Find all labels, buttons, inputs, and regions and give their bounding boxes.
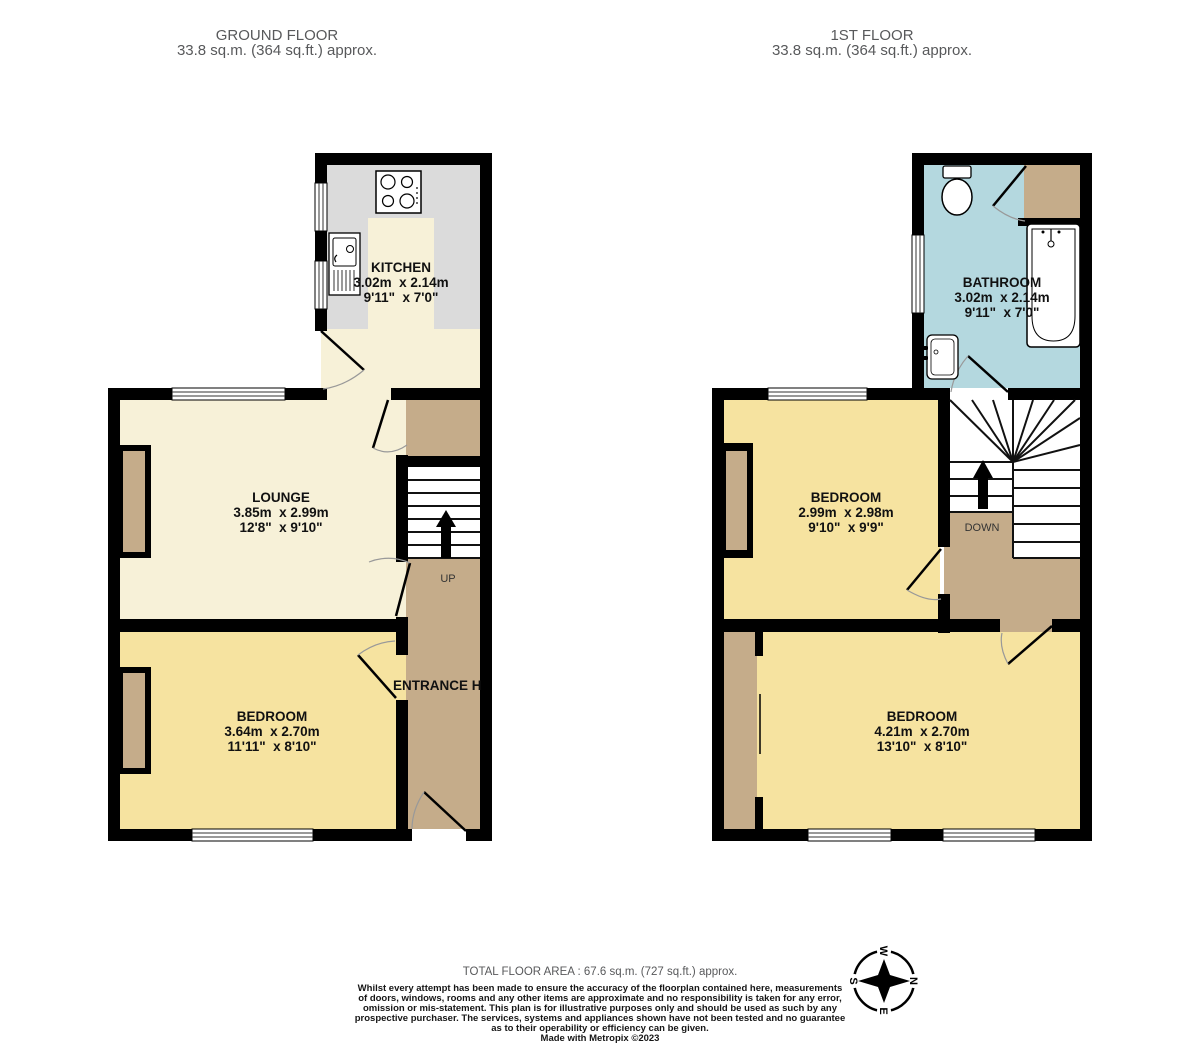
ff-bedroom1-dim-imperial: 9'10" x 9'9" (808, 520, 884, 535)
ground-floor-title-text: GROUND FLOOR (77, 28, 477, 43)
total-floor-area: TOTAL FLOOR AREA : 67.6 sq.m. (727 sq.ft… (0, 966, 1200, 978)
first-floor-title: 1ST FLOOR 33.8 sq.m. (364 sq.ft.) approx… (672, 28, 1072, 58)
gf-bedroom-dim-metric: 3.64m x 2.70m (224, 724, 319, 739)
lounge-dim-imperial: 12'8" x 9'10" (239, 520, 322, 535)
ff-bedroom2-dim-metric: 4.21m x 2.70m (874, 724, 969, 739)
bathroom-label: BATHROOM (963, 275, 1042, 290)
first-floor-plan: BATHROOM 3.02m x 2.14m 9'11" x 7'0" BEDR… (700, 145, 1100, 850)
kitchen-dim-metric: 3.02m x 2.14m (353, 275, 448, 290)
bathroom-dim-metric: 3.02m x 2.14m (954, 290, 1049, 305)
metropix-credit: Made with Metropix ©2023 (0, 1034, 1200, 1044)
ground-floor-plan: KITCHEN 3.02m x 2.14m 9'11" x 7'0" LOUNG… (100, 145, 500, 850)
washbasin-icon (922, 335, 958, 379)
gf-bedroom-label: BEDROOM (237, 709, 308, 724)
first-floor-area-text: 33.8 sq.m. (364 sq.ft.) approx. (672, 43, 1072, 58)
down-label: DOWN (965, 522, 1000, 534)
toilet-icon (942, 166, 972, 215)
first-floor-title-text: 1ST FLOOR (672, 28, 1072, 43)
kitchen-label: KITCHEN (371, 260, 431, 275)
ground-floor-title: GROUND FLOOR 33.8 sq.m. (364 sq.ft.) app… (77, 28, 477, 58)
ff-bedroom2-label: BEDROOM (887, 709, 958, 724)
ff-bedroom1-dim-metric: 2.99m x 2.98m (798, 505, 893, 520)
ff-bedroom1-label: BEDROOM (811, 490, 882, 505)
window (315, 261, 327, 309)
window (315, 183, 327, 231)
kitchen-dim-imperial: 9'11" x 7'0" (364, 290, 439, 305)
cupboard (1024, 165, 1080, 218)
ground-floor-area-text: 33.8 sq.m. (364 sq.ft.) approx. (77, 43, 477, 58)
compass-west: W (877, 946, 889, 957)
floorplan-page: { "colors": { "wall": "#000000", "floor_… (0, 0, 1200, 1044)
lounge-dim-metric: 3.85m x 2.99m (233, 505, 328, 520)
front-door-opening (412, 829, 466, 841)
bathroom-dim-imperial: 9'11" x 7'0" (965, 305, 1040, 320)
window (172, 388, 285, 400)
window (192, 829, 313, 841)
bedroom2-alcove (724, 632, 757, 829)
window (943, 829, 1035, 841)
window (808, 829, 891, 841)
up-label: UP (440, 573, 455, 585)
disclaimer: Whilst every attempt has been made to en… (0, 984, 1200, 1044)
window (768, 388, 867, 400)
window (912, 235, 924, 313)
gf-bedroom-dim-imperial: 11'11" x 8'10" (227, 739, 316, 754)
ff-bedroom2-dim-imperial: 13'10" x 8'10" (877, 739, 968, 754)
hob-icon (376, 171, 421, 213)
lounge-label: LOUNGE (252, 490, 310, 505)
